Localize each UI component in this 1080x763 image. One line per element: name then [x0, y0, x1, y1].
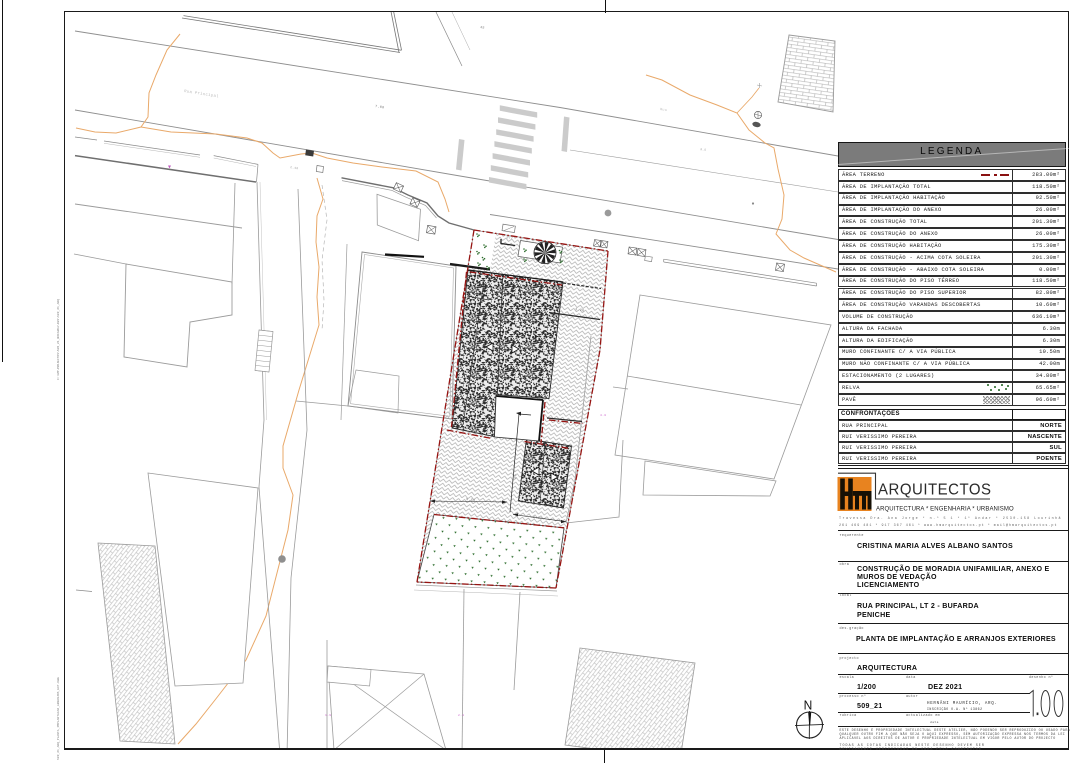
svg-text:N: N [804, 698, 813, 713]
svg-text:ARQUITECTURA * ENGENHARIA * UR: ARQUITECTURA * ENGENHARIA * URBANISMO [876, 507, 1014, 513]
svg-text:ARQUITECTOS: ARQUITECTOS [878, 481, 992, 498]
